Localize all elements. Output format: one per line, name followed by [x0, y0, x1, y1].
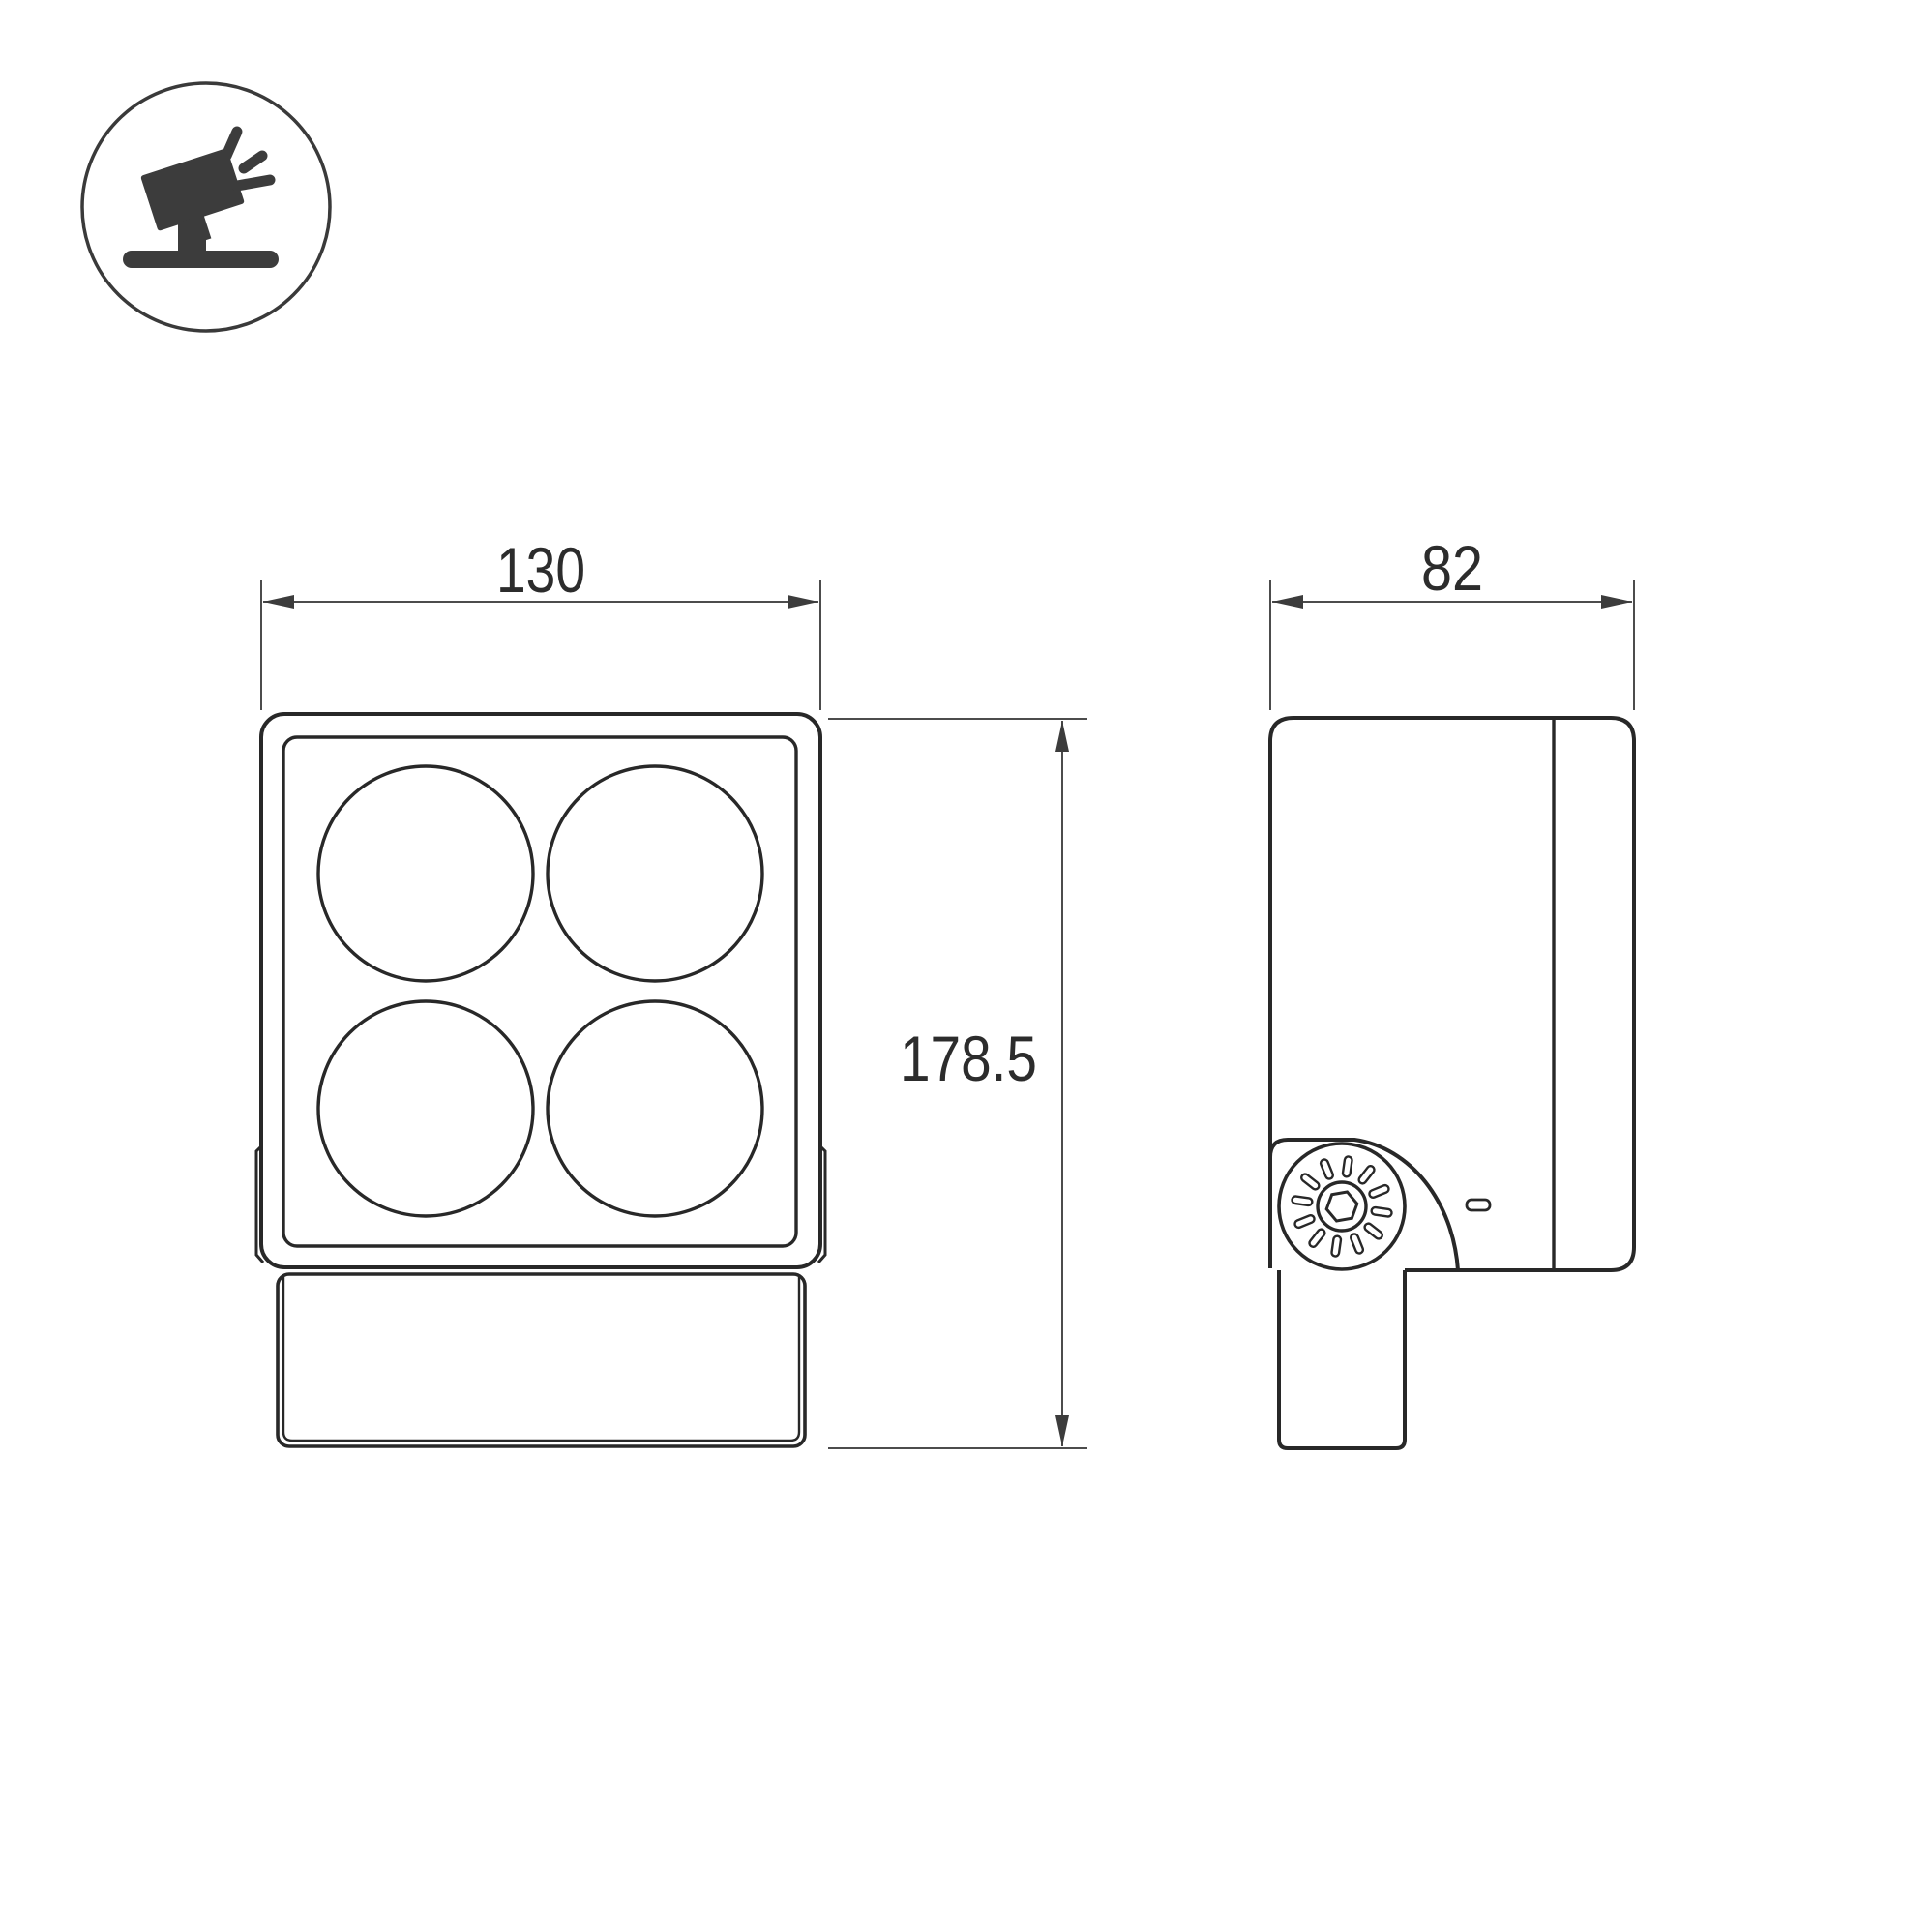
arrow-left-icon: [263, 595, 294, 609]
dimension-side-depth: 82: [1270, 532, 1634, 710]
technical-drawing: 130 82 178.5: [0, 0, 1932, 1932]
dimension-label-height: 178.5: [900, 1023, 1037, 1094]
front-head-outline: [261, 714, 820, 1267]
side-pole-fill: [1279, 1258, 1405, 1448]
knob-slot: [1292, 1196, 1313, 1205]
knob-slot: [1331, 1235, 1341, 1257]
knob-slot: [1343, 1156, 1352, 1177]
front-view: [256, 714, 825, 1446]
knob-hub-circle: [1318, 1182, 1366, 1231]
drawing-canvas: 130 82 178.5: [0, 0, 1932, 1932]
arrow-up-icon: [1055, 721, 1069, 752]
dimension-front-width: 130: [261, 534, 820, 710]
knob-slot: [1371, 1207, 1392, 1217]
front-driver-box: [278, 1274, 805, 1446]
icon-lamp-base: [123, 251, 279, 268]
arrow-left-icon: [1272, 595, 1303, 609]
dimension-label-width: 130: [496, 534, 585, 606]
arrow-down-icon: [1055, 1415, 1069, 1446]
dimension-total-height: 178.5: [828, 719, 1087, 1448]
light-ray-icon: [237, 180, 270, 186]
side-view: [1270, 718, 1634, 1448]
arrow-right-icon: [1601, 595, 1632, 609]
floodlight-icon: [82, 83, 330, 331]
dimension-label-depth: 82: [1421, 532, 1483, 604]
adjustment-knob: [1279, 1144, 1405, 1269]
arrow-right-icon: [788, 595, 818, 609]
